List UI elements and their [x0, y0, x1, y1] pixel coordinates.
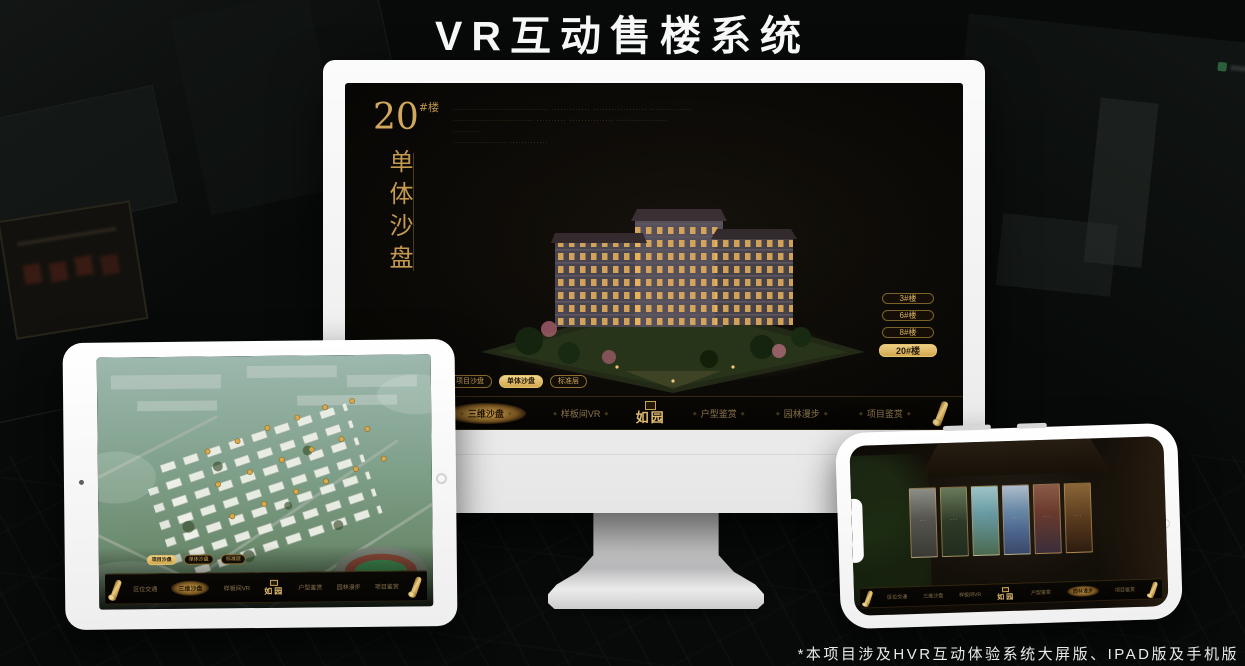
- scene-gallery: [909, 482, 1093, 558]
- nav-item-3d-sandtable[interactable]: 三维沙盘: [446, 403, 526, 424]
- building-number-unit: #楼: [419, 101, 439, 114]
- nav-item-garden-walk[interactable]: 园林漫步: [1067, 585, 1099, 597]
- building-number: 20: [373, 97, 419, 138]
- phone-screen: 区位交通 三维沙盘 样板间VR 如园 户型鉴赏 园林漫步 项目鉴赏: [849, 436, 1168, 616]
- nav-item-unit-plans[interactable]: 户型鉴赏: [1031, 589, 1051, 597]
- background-award-plaque: [0, 200, 149, 339]
- nav-item-garden-walk[interactable]: 园林漫步: [337, 582, 361, 591]
- scene-card-interior[interactable]: [1064, 482, 1093, 553]
- tab-single-sandtable[interactable]: 单体沙盘: [184, 554, 214, 564]
- brand-logo-text: 如园: [997, 593, 1015, 601]
- floor-button-20[interactable]: 20#楼: [879, 344, 937, 357]
- tablet-tab-row: 项目沙盘 单体沙盘 标准层: [147, 554, 246, 565]
- tablet-camera: [79, 480, 84, 485]
- description-line: ··························· ·········· ·…: [453, 116, 843, 127]
- seal-icon: [645, 401, 656, 410]
- building-description: ································ ·······…: [453, 105, 843, 149]
- background-building: [996, 213, 1118, 297]
- monitor-tab-row: 项目沙盘 单体沙盘 标准层: [448, 375, 587, 388]
- building-render: [457, 145, 889, 393]
- description-line: ································ ·······…: [453, 105, 843, 116]
- scene-card-building[interactable]: [1002, 484, 1031, 555]
- tab-project-sandtable[interactable]: 项目沙盘: [147, 555, 177, 565]
- scroll-menu-icon[interactable]: [110, 579, 122, 600]
- tablet-device: 项目沙盘 单体沙盘 标准层 区位交通 三维沙盘 样板间VR 如园 户型鉴赏 园林…: [63, 339, 458, 630]
- description-line: ·········: [453, 127, 843, 138]
- building-headline: 20#楼: [373, 99, 439, 136]
- brand-logo: 如园: [997, 587, 1015, 601]
- scene-card-courtyard[interactable]: [909, 487, 938, 558]
- poster-stage: VR互动售楼系统 20#楼 单体沙盘 ·····················…: [0, 0, 1245, 666]
- scene-card-garden[interactable]: [940, 486, 969, 557]
- nav-item-location-traffic[interactable]: 区位交通: [133, 584, 157, 593]
- nav-item-project-gallery[interactable]: 项目鉴赏: [375, 582, 399, 591]
- nav-item-modelroom-vr[interactable]: 样板间VR: [959, 591, 981, 599]
- scroll-menu-icon[interactable]: [410, 575, 422, 596]
- phone-volume-button: [943, 425, 991, 432]
- floor-button-6[interactable]: 6#楼: [882, 310, 934, 321]
- scene-card-landscape[interactable]: [971, 485, 1000, 556]
- nav-item-unit-plans[interactable]: 户型鉴赏: [689, 407, 749, 420]
- phone-power-button: [1017, 423, 1047, 429]
- phone-device: 区位交通 三维沙盘 样板间VR 如园 户型鉴赏 园林漫步 项目鉴赏: [835, 423, 1183, 630]
- tablet-bottom-nav: 区位交通 三维沙盘 样板间VR 如园 户型鉴赏 园林漫步 项目鉴赏: [105, 570, 427, 604]
- brand-logo: 如园: [264, 580, 284, 595]
- nav-item-location-traffic[interactable]: 区位交通: [887, 593, 907, 601]
- nav-item-garden-walk[interactable]: 园林漫步: [772, 407, 832, 420]
- nav-item-3d-sandtable[interactable]: 三维沙盘: [171, 581, 209, 596]
- developer-logo-icon: [1217, 62, 1227, 72]
- developer-logo-text: [1230, 65, 1245, 74]
- brand-logo-text: 如园: [264, 587, 284, 595]
- tablet-home-button: [436, 473, 447, 484]
- tab-single-sandtable[interactable]: 单体沙盘: [499, 375, 543, 388]
- scene-card-autumn[interactable]: [1033, 483, 1062, 554]
- tablet-screen: 项目沙盘 单体沙盘 标准层 区位交通 三维沙盘 样板间VR 如园 户型鉴赏 园林…: [97, 354, 434, 609]
- scroll-menu-icon[interactable]: [864, 590, 873, 606]
- brand-logo: 如园: [636, 401, 666, 425]
- scroll-menu-icon[interactable]: [934, 401, 949, 426]
- tab-standard-floor[interactable]: 标准层: [221, 554, 246, 564]
- footnote-text: *本项目涉及HVR互动体验系统大屏版、IPAD版及手机版: [798, 643, 1239, 664]
- scroll-menu-icon[interactable]: [1149, 581, 1158, 597]
- phone-notch: [851, 499, 864, 563]
- nav-item-unit-plans[interactable]: 户型鉴赏: [298, 582, 322, 591]
- floor-button-group: 3#楼 6#楼 8#楼 20#楼: [879, 293, 937, 357]
- floor-button-8[interactable]: 8#楼: [882, 327, 934, 338]
- nav-item-3d-sandtable[interactable]: 三维沙盘: [923, 592, 943, 600]
- headline-vertical-title: 单体沙盘: [382, 149, 417, 277]
- page-title: VR互动售楼系统: [0, 2, 1245, 62]
- nav-item-project-gallery[interactable]: 项目鉴赏: [1115, 586, 1135, 594]
- brand-logo-text: 如园: [636, 412, 666, 425]
- nav-item-modelroom-vr[interactable]: 样板间VR: [549, 407, 612, 420]
- nav-item-modelroom-vr[interactable]: 样板间VR: [224, 583, 250, 592]
- tab-standard-floor[interactable]: 标准层: [550, 375, 587, 388]
- interior-beam: [919, 438, 1110, 478]
- nav-item-project-gallery[interactable]: 项目鉴赏: [855, 407, 915, 420]
- floor-button-3[interactable]: 3#楼: [882, 293, 934, 304]
